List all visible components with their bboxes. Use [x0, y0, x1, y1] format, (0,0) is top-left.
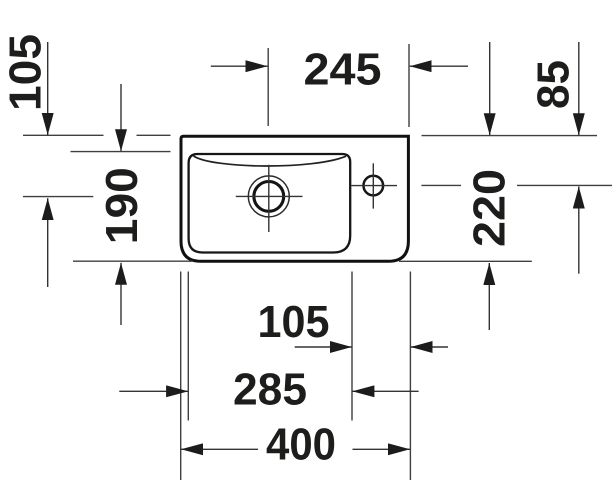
- svg-text:400: 400: [266, 419, 336, 470]
- svg-text:285: 285: [233, 364, 307, 415]
- svg-text:245: 245: [304, 44, 382, 95]
- svg-text:85: 85: [528, 60, 579, 109]
- svg-text:105: 105: [0, 34, 50, 111]
- svg-text:190: 190: [96, 167, 147, 244]
- svg-text:105: 105: [258, 296, 330, 347]
- svg-text:220: 220: [463, 169, 514, 247]
